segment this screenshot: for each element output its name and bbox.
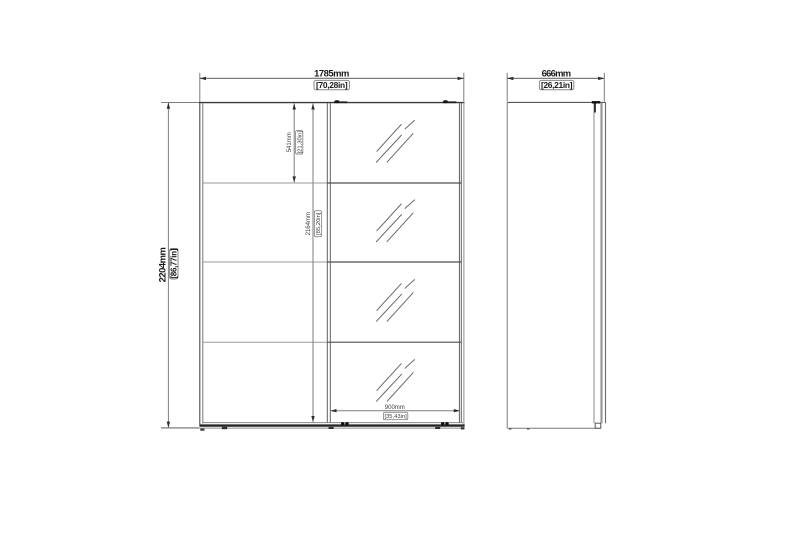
svg-text:[70,28in]: [70,28in]	[316, 80, 348, 90]
svg-text:[26,21in]: [26,21in]	[541, 80, 573, 90]
svg-text:2204mm: 2204mm	[156, 247, 167, 282]
svg-text:[86,77in]: [86,77in]	[169, 248, 178, 278]
svg-text:541mm: 541mm	[287, 132, 293, 152]
svg-text:2164mm: 2164mm	[306, 212, 312, 235]
svg-text:[85,20in]: [85,20in]	[316, 212, 322, 235]
svg-text:666mm: 666mm	[542, 68, 571, 79]
svg-text:[21,30in]: [21,30in]	[297, 131, 303, 154]
svg-text:[35,43in]: [35,43in]	[384, 414, 407, 420]
svg-text:1785mm: 1785mm	[314, 68, 349, 79]
svg-text:900mm: 900mm	[385, 405, 405, 411]
